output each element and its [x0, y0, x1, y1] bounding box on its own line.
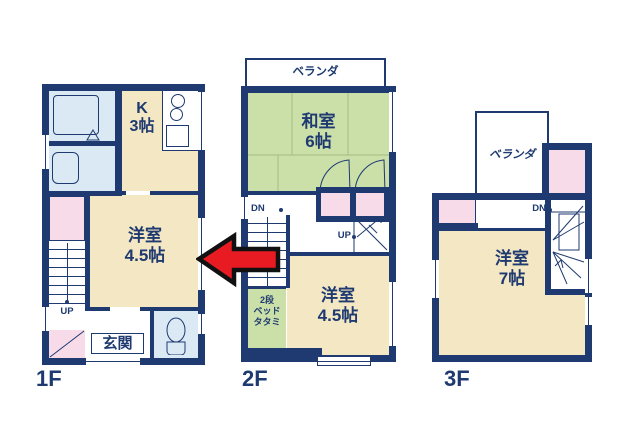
window	[198, 92, 205, 150]
veranda-label: ベランダ	[477, 149, 547, 162]
veranda-3f: ベランダ	[475, 111, 549, 196]
closet	[49, 196, 85, 241]
wall	[241, 348, 322, 362]
entrance-door	[86, 358, 140, 365]
floor-label-2f: 2F	[242, 366, 268, 392]
stairs-down-winder-icon	[551, 200, 585, 289]
western-name: 洋室	[293, 286, 383, 306]
bunk-line1: 2段	[248, 295, 286, 306]
wall	[42, 191, 122, 196]
floorplan-3f: ベランダ	[432, 111, 592, 365]
window	[198, 314, 205, 334]
up-label: UP	[325, 231, 351, 242]
closet-door-arcs-icon	[318, 157, 386, 193]
window	[389, 92, 396, 152]
japanese-size: 6帖	[281, 132, 356, 152]
wall	[42, 84, 205, 91]
toilet-icon	[163, 315, 189, 355]
wall	[241, 86, 248, 362]
door-opening	[110, 307, 140, 311]
wall	[241, 86, 396, 93]
window	[42, 307, 49, 331]
room-label-kitchen: K 3帖	[118, 100, 166, 137]
up-label: UP	[49, 307, 85, 318]
wall	[150, 311, 154, 358]
kitchen-name: K	[118, 100, 166, 118]
floor-label-3f: 3F	[444, 366, 470, 392]
washing-machine-icon	[52, 152, 79, 184]
room-label-western-2f: 洋室 4.5帖	[293, 286, 383, 325]
japanese-name: 和室	[281, 112, 356, 132]
red-arrow-left-icon	[196, 231, 282, 288]
window	[585, 259, 592, 293]
closet	[439, 200, 476, 223]
floorplan-2f: ベランダ	[241, 58, 396, 370]
bunk-line3: タタミ	[248, 317, 286, 328]
western-name: 洋室	[100, 226, 190, 246]
dn-label: DN	[520, 204, 546, 215]
closet	[321, 193, 350, 216]
sink-icon	[166, 125, 189, 147]
stair-dot	[548, 208, 552, 212]
room-label-western-3f: 洋室 7帖	[470, 249, 554, 288]
stair-start-dot	[65, 300, 69, 304]
western-size: 4.5帖	[100, 246, 190, 266]
door-opening	[126, 191, 150, 195]
veranda-label: ベランダ	[247, 66, 384, 79]
stair-dot	[279, 208, 283, 212]
wall	[49, 141, 115, 146]
house-floorplan: K 3帖 洋室 4.5帖 UP 玄関 1F ベランダ	[0, 0, 640, 443]
wall	[439, 228, 545, 231]
window	[389, 282, 396, 346]
stair-dot	[352, 235, 356, 239]
wall	[545, 289, 585, 295]
bay-window	[317, 356, 371, 366]
western-name: 洋室	[470, 249, 554, 269]
window	[432, 260, 439, 298]
stairs-up-winder-icon	[353, 215, 389, 253]
room-western-3f-ext	[545, 295, 585, 355]
window	[241, 197, 248, 219]
wall	[432, 355, 592, 362]
wall	[85, 191, 90, 311]
stove-burner-icon	[171, 94, 185, 108]
closet	[549, 150, 585, 193]
wall	[432, 193, 592, 200]
stair-direction-line	[67, 243, 68, 303]
veranda-2f: ベランダ	[245, 58, 386, 88]
stove-burner-icon	[170, 108, 183, 121]
dn-label: DN	[251, 204, 281, 215]
window	[585, 297, 592, 325]
closet-door-line-icon	[49, 330, 85, 358]
bunk-line2: ベッド	[248, 306, 286, 317]
wall	[241, 191, 321, 195]
kitchen-size: 3帖	[118, 118, 166, 136]
bunk-bed-label: 2段 ベッド タタミ	[248, 295, 286, 327]
entrance-label-box: 玄関	[91, 333, 144, 354]
wall	[85, 307, 198, 311]
floor-label-1f: 1F	[36, 366, 62, 392]
window	[42, 135, 49, 169]
room-label-japanese: 和室 6帖	[281, 112, 356, 151]
door-triangle-icon	[86, 129, 100, 141]
closet-entrance	[49, 330, 85, 358]
stairs-up-icon	[49, 241, 85, 305]
western-size: 4.5帖	[293, 306, 383, 326]
floorplan-1f: K 3帖 洋室 4.5帖 UP 玄関	[42, 84, 205, 365]
closet	[356, 193, 384, 216]
western-size: 7帖	[470, 269, 554, 289]
room-label-western-1f: 洋室 4.5帖	[100, 226, 190, 265]
